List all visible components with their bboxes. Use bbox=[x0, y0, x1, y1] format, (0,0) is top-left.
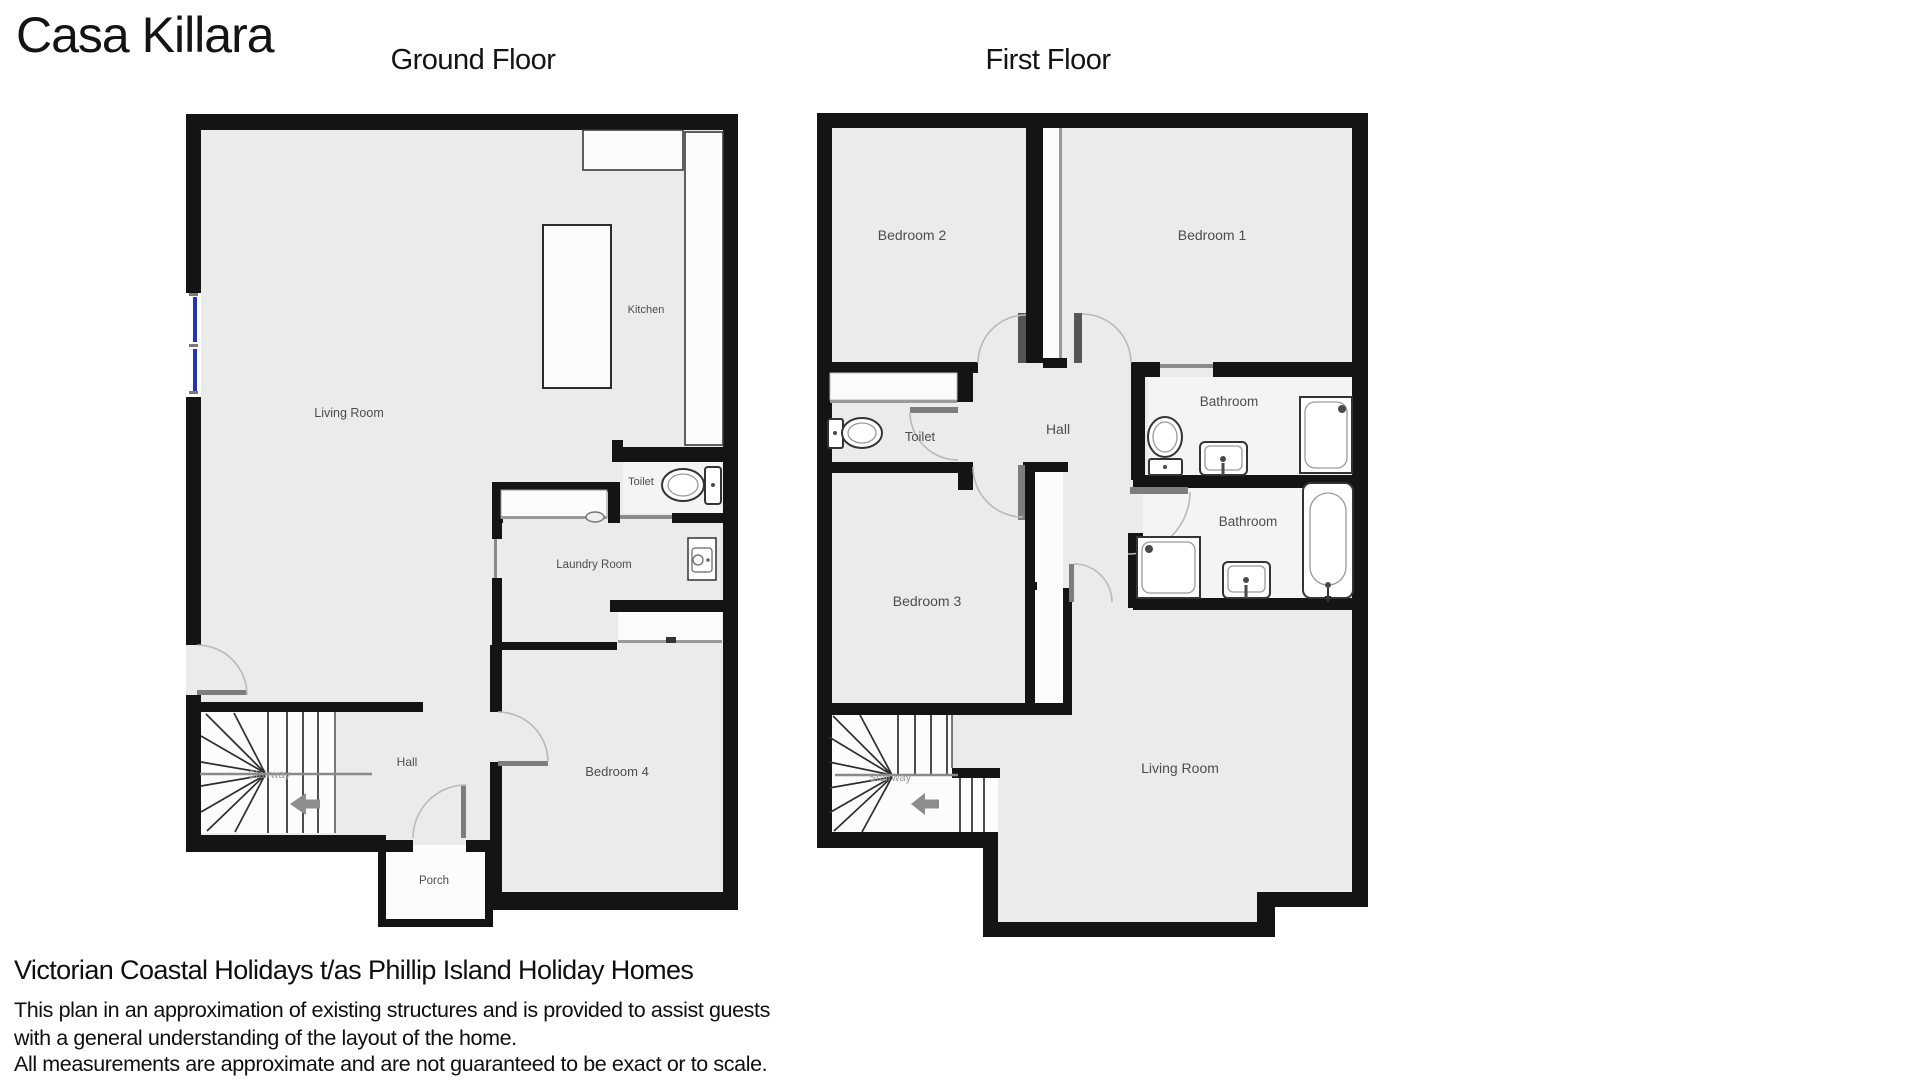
first-floor-plan: Bedroom 2 Bedroom 1 Toilet Hall Bathroom… bbox=[817, 113, 1368, 937]
room-label-stairway-ground: Stairway bbox=[248, 769, 291, 781]
bathroom-shower-icon bbox=[1137, 537, 1200, 598]
ensuite-toilet-icon bbox=[1148, 417, 1182, 475]
laundry-door bbox=[494, 539, 497, 578]
stair-shaft-lower bbox=[1035, 588, 1063, 705]
bathroom-sink-icon bbox=[1223, 562, 1270, 598]
kitchen-island bbox=[543, 225, 611, 388]
room-label-bathroom-main: Bathroom bbox=[1219, 514, 1278, 529]
toilet-threshold bbox=[620, 515, 672, 519]
room-label-living-room-ground: Living Room bbox=[314, 406, 383, 420]
room-label-bedroom-2: Bedroom 2 bbox=[878, 227, 947, 243]
ground-toilet-icon bbox=[662, 467, 721, 504]
footer-company: Victorian Coastal Holidays t/as Phillip … bbox=[14, 955, 693, 986]
bathtub-icon bbox=[1303, 483, 1353, 603]
bedroom2-robe bbox=[830, 373, 957, 403]
ground-floor-title: Ground Floor bbox=[391, 44, 556, 77]
ground-floor-plan: Living Room Kitchen Toilet Laundry Room … bbox=[186, 114, 738, 927]
window bbox=[186, 293, 201, 397]
stair-shaft-upper bbox=[1043, 128, 1059, 358]
room-label-bedroom-1: Bedroom 1 bbox=[1178, 227, 1247, 243]
ensuite-sink-icon bbox=[1200, 442, 1247, 475]
first-floor-title: First Floor bbox=[986, 44, 1111, 77]
kitchen-counter-top bbox=[583, 130, 683, 170]
room-label-bathroom-ensuite: Bathroom bbox=[1200, 394, 1259, 409]
ensuite-threshold bbox=[1160, 364, 1213, 368]
room-label-toilet-first: Toilet bbox=[905, 429, 936, 444]
page-title: Casa Killara bbox=[16, 6, 274, 64]
washing-machine-icon bbox=[688, 538, 716, 580]
footer-disclaimer-1: This plan in an approximation of existin… bbox=[14, 998, 770, 1023]
room-label-bedroom-4: Bedroom 4 bbox=[585, 764, 649, 779]
first-toilet-icon bbox=[828, 418, 882, 448]
first-stairway-ext-floor bbox=[952, 778, 998, 832]
kitchen-counter-side bbox=[685, 132, 723, 445]
room-label-porch: Porch bbox=[419, 875, 449, 887]
floor-plan-canvas: Living Room Kitchen Toilet Laundry Room … bbox=[0, 0, 1920, 1080]
room-label-hall-ground: Hall bbox=[397, 755, 418, 769]
room-label-kitchen: Kitchen bbox=[628, 304, 665, 316]
bedroom4-robe bbox=[618, 612, 722, 643]
room-label-hall-first: Hall bbox=[1046, 421, 1070, 437]
floor-plan-page: Living Room Kitchen Toilet Laundry Room … bbox=[0, 0, 1920, 1080]
room-label-toilet-ground: Toilet bbox=[628, 476, 654, 488]
room-label-living-room-first: Living Room bbox=[1141, 760, 1219, 776]
room-label-laundry-room: Laundry Room bbox=[556, 559, 631, 571]
laundry-bench bbox=[501, 490, 607, 522]
room-label-bedroom-3: Bedroom 3 bbox=[893, 593, 962, 609]
footer-disclaimer-3: All measurements are approximate and are… bbox=[14, 1052, 767, 1077]
footer-disclaimer-2: with a general understanding of the layo… bbox=[14, 1026, 517, 1051]
room-label-stairway-first: Stairway bbox=[869, 772, 912, 784]
ensuite-shower-icon bbox=[1300, 397, 1352, 473]
laundry-sink-icon bbox=[586, 512, 604, 522]
